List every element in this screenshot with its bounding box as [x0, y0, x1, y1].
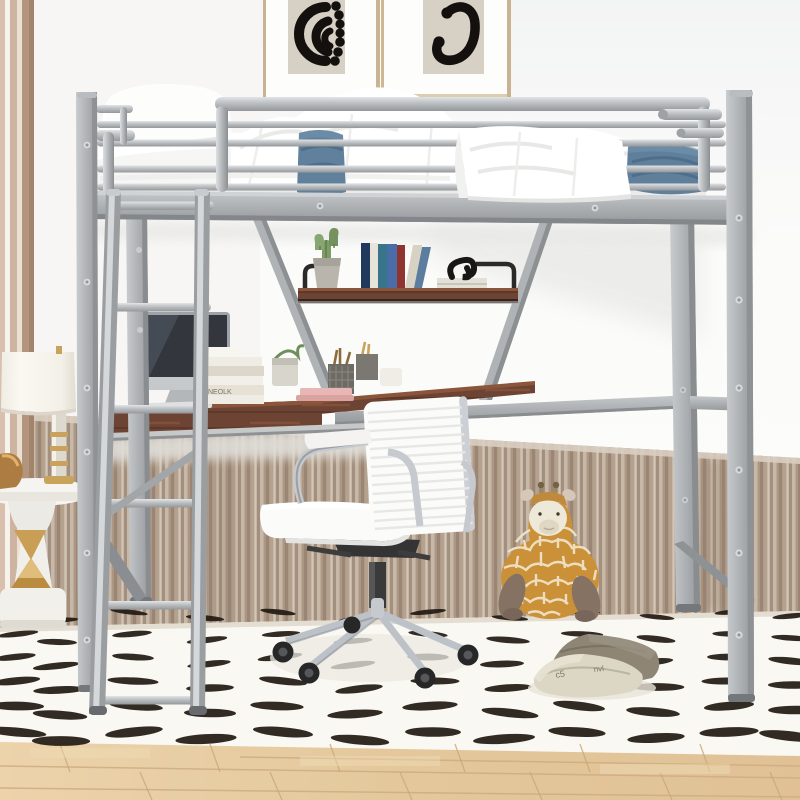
svg-text:nvl: nvl: [593, 664, 604, 674]
svg-text:c5: c5: [555, 668, 566, 680]
svg-text:NEOLK: NEOLK: [208, 389, 232, 396]
